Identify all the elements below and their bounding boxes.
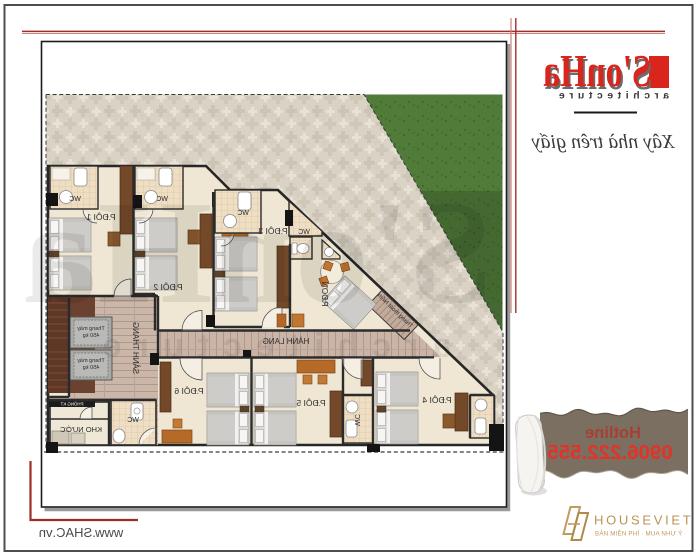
svg-text:P.ĐÔI 4: P.ĐÔI 4	[422, 395, 451, 405]
svg-text:WC: WC	[353, 414, 360, 426]
svg-text:WC: WC	[127, 417, 139, 424]
svg-text:www.SHAC.vn: www.SHAC.vn	[39, 525, 125, 540]
svg-text:Hotline: Hotline	[585, 424, 641, 442]
svg-text:KHO NƯỚC: KHO NƯỚC	[59, 425, 102, 434]
svg-text:HOUSEVIET: HOUSEVIET	[594, 513, 693, 528]
svg-text:architecture: architecture	[554, 91, 669, 102]
svg-text:P.ĐÔI 6: P.ĐÔI 6	[174, 386, 203, 396]
svg-text:0906.222.555: 0906.222.555	[547, 441, 672, 464]
svg-text:S'onHa: S'onHa	[543, 45, 651, 96]
svg-text:Xây nhà trên giấy: Xây nhà trên giấy	[532, 131, 676, 153]
svg-text:architecture: architecture	[89, 327, 452, 365]
svg-text:PHÒNG KT: PHÒNG KT	[60, 401, 83, 406]
svg-text:P.ĐÔI 5: P.ĐÔI 5	[296, 398, 325, 408]
svg-text:450 kg: 450 kg	[83, 365, 100, 371]
svg-text:BẢN MIỄN PHÍ · MUA NHƯ Ý: BẢN MIỄN PHÍ · MUA NHƯ Ý	[595, 531, 682, 538]
svg-text:S'onHa: S'onHa	[24, 171, 493, 335]
